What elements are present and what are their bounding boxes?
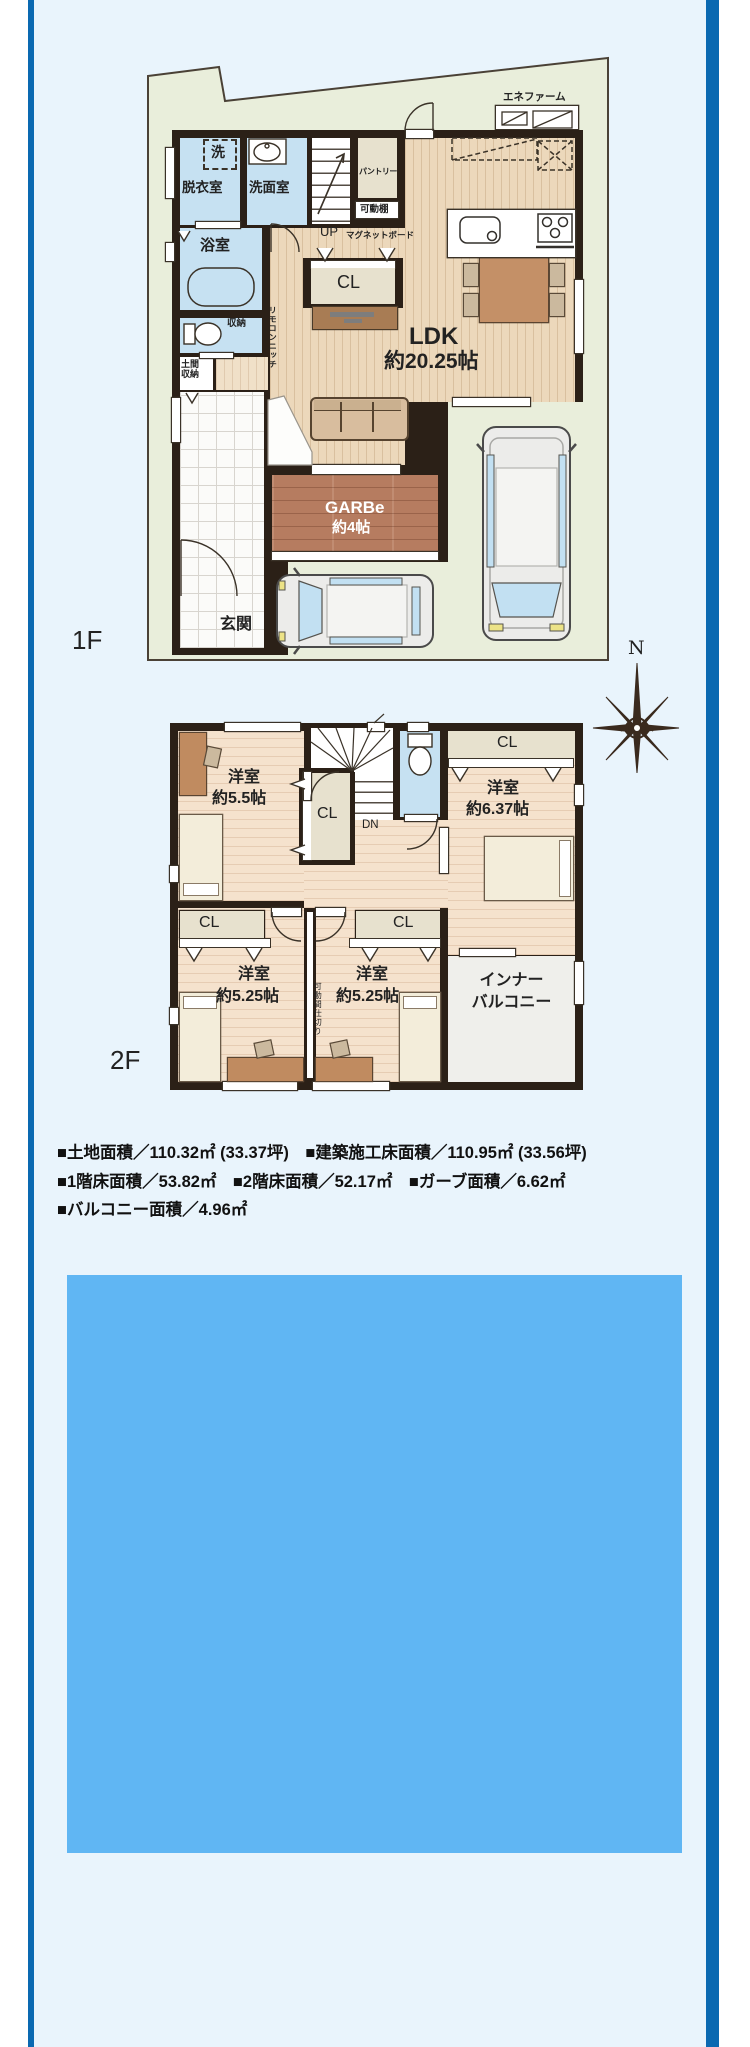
stairs-2f-run [355, 772, 393, 820]
datsui-label: 脱衣室 [182, 180, 223, 196]
pillow-2f-sw [184, 997, 216, 1008]
genkan-label: 玄関 [220, 616, 252, 634]
area-line-2: ■1階床面積／53.82㎡ ■2階床面積／52.17㎡ ■ガーブ面積／6.62㎡ [57, 1168, 697, 1197]
closet-2f-se-door [350, 939, 440, 947]
remote-niche-label: リモコンニッチ [268, 306, 277, 378]
window-2f-sw-south [223, 1082, 297, 1090]
ldk-size-label: 約20.25帖 [384, 350, 479, 374]
desk-2f-nw [180, 733, 206, 795]
window-2f-nw-west [170, 866, 178, 882]
pillow-2f-nw [184, 884, 218, 895]
storage-label: 収納 [227, 319, 246, 330]
garage-shutter [272, 552, 438, 560]
door-2f-ne [440, 828, 448, 873]
room-toilet-1f [180, 318, 262, 353]
closet-2f-sw-label: CL [199, 914, 219, 932]
window-datsui-west [166, 148, 174, 198]
balcony-label-1: インナー [448, 972, 575, 990]
desk-2f-se [316, 1058, 372, 1081]
window-2f-sw-west [170, 1008, 178, 1024]
tv-stand [344, 319, 362, 323]
door-2f-nw [304, 772, 311, 800]
window-2f-se-south [313, 1082, 389, 1090]
stairs-1f [312, 138, 350, 224]
window-2f-nw-north [225, 723, 300, 731]
floor1-label: 1F [72, 626, 102, 656]
movable-shelf-label: 可動棚 [360, 205, 389, 216]
left-accent-bar [28, 0, 34, 2047]
room-se-size: 約5.25帖 [336, 988, 399, 1006]
closet-2f-sw-door [180, 939, 270, 947]
window-bath-west [166, 243, 174, 261]
doma-label-2: 収納 [181, 369, 199, 379]
area-line-1: ■土地面積／110.32㎡ (33.37坪) ■建築施工床面積／110.95㎡ … [57, 1139, 697, 1168]
closet-2f-se-label: CL [393, 914, 413, 932]
enefarm-label: エネファーム [503, 91, 566, 103]
room-toilet-2f [400, 731, 440, 817]
closet-2f-ne-label: CL [497, 734, 517, 752]
enefarm-unit [496, 106, 578, 129]
partition-label: 可動間仕切り [313, 982, 322, 1048]
dining-table [480, 256, 548, 322]
balcony-label-2: バルコニー [448, 994, 575, 1012]
compass-north-label: N [628, 638, 645, 660]
dining-chair-2 [464, 294, 478, 316]
window-ldk-south-right [453, 398, 530, 406]
sofa-back [314, 400, 401, 411]
up-label: UP [320, 225, 338, 240]
door-toilet-1f [200, 353, 233, 358]
dining-chair-1 [464, 264, 478, 286]
pillow-2f-ne [560, 841, 570, 896]
closet-2f-ne-door [449, 759, 573, 767]
closet-1f-door [311, 261, 395, 268]
closet-2f-mid-label: CL [317, 805, 337, 823]
hall-strip-1f [216, 357, 268, 390]
room-nw-name: 洋室 [228, 769, 260, 787]
room-sw-size: 約5.25帖 [216, 988, 279, 1006]
washer-label: 洗 [211, 144, 225, 160]
desk-2f-sw [228, 1058, 303, 1081]
door-kitchen-north [406, 130, 433, 138]
hall-2f-a [355, 820, 448, 908]
room-genkan [180, 392, 264, 648]
door-2f-se [316, 908, 345, 916]
senmen-label: 洗面室 [249, 180, 290, 196]
tv-board [313, 307, 397, 329]
stairs-2f-upper [311, 728, 393, 772]
area-line-3: ■バルコニー面積／4.96㎡ [57, 1196, 697, 1225]
room-ne-name: 洋室 [487, 780, 519, 798]
closet-2f-sw [180, 911, 264, 939]
window-2f-stair-north [368, 723, 384, 731]
garage-size-label: 約4帖 [332, 519, 370, 536]
photo-placeholder [67, 1275, 682, 1853]
window-ldk-east [575, 280, 583, 353]
garage-name-label: GARBe [325, 498, 385, 518]
door-bath [196, 222, 240, 228]
pillow-2f-se [404, 997, 436, 1008]
window-genkan-west [172, 398, 180, 442]
floor2-label: 2F [110, 1046, 140, 1076]
right-accent-bar [706, 0, 719, 2047]
door-2f-sw [272, 908, 301, 916]
room-sw-name: 洋室 [238, 966, 270, 984]
sofa-cushion-line2 [372, 402, 374, 432]
kitchen-counter [448, 210, 575, 257]
dining-chair-3 [550, 264, 564, 286]
room-nw-size: 約5.5帖 [212, 790, 266, 808]
doma-label-1: 土間 [181, 359, 199, 369]
dn-label: DN [362, 819, 379, 832]
ldk-name-label: LDK [409, 323, 458, 351]
window-balcony-east [575, 962, 583, 1004]
window-ldk-south-left [312, 465, 400, 474]
room-se-name: 洋室 [356, 966, 388, 984]
door-2f-toilet [405, 815, 437, 821]
window-2f-toilet-north [408, 723, 428, 731]
pantry-label: パントリー [359, 167, 397, 176]
floor-plan-page: 1F 2F 洗 脱衣室 洗面室 浴室 収納 土間 収納 玄関 パントリー 可動棚… [0, 0, 750, 2047]
bath-label: 浴室 [200, 237, 230, 254]
window-2f-ne-east [575, 785, 583, 805]
magnet-board-label: マグネットボード [346, 231, 414, 241]
closet-1f-label: CL [337, 272, 360, 293]
sofa-cushion-line1 [340, 402, 342, 432]
dining-chair-4 [550, 294, 564, 316]
hall-2f-b [304, 865, 355, 908]
window-balcony-north [460, 949, 515, 956]
room-ne-size: 約6.37帖 [466, 801, 529, 819]
area-table: ■土地面積／110.32㎡ (33.37坪) ■建築施工床面積／110.95㎡ … [57, 1139, 697, 1225]
tv-screen [330, 312, 374, 317]
